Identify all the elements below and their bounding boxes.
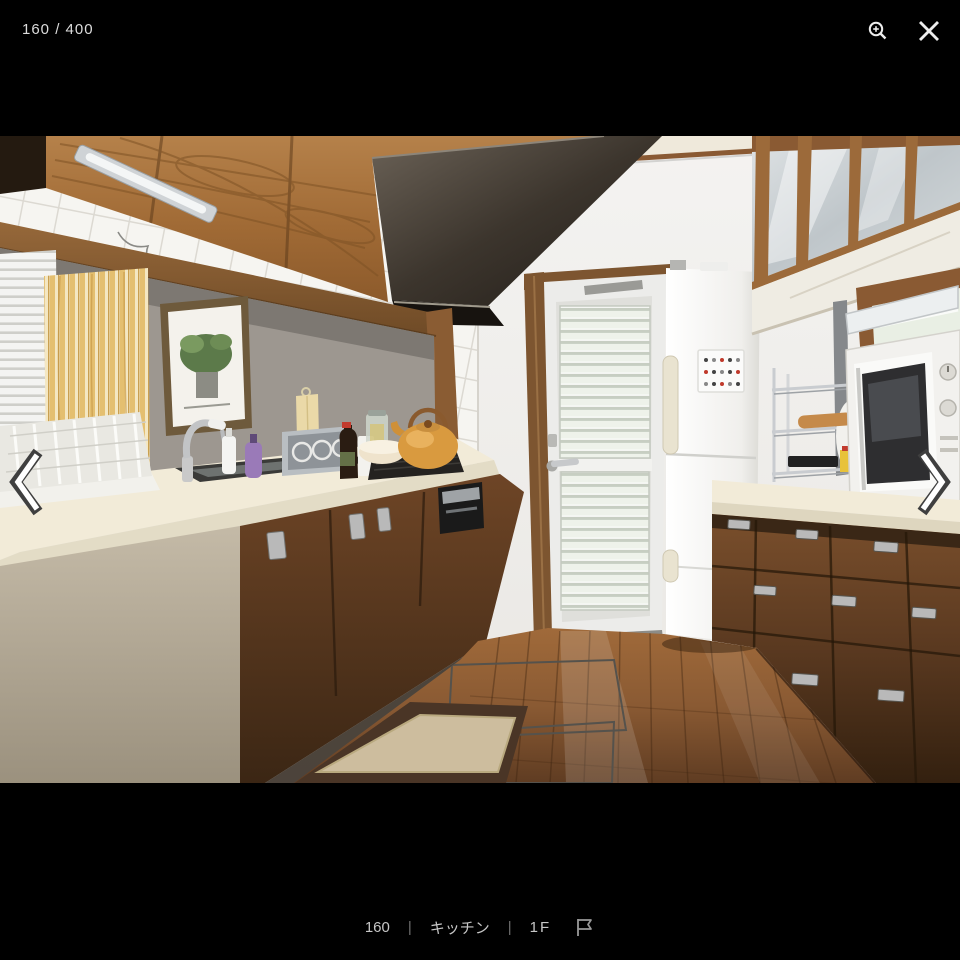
caption-floor-label: 1F bbox=[530, 919, 552, 936]
magnet-board bbox=[698, 350, 744, 392]
door-louver-upper bbox=[560, 306, 650, 458]
zoom-in-button[interactable] bbox=[865, 18, 891, 44]
photo-caption-bar: 160 | キッチン | 1F bbox=[0, 916, 960, 938]
photo-viewer: 160 / 400 bbox=[0, 0, 960, 960]
fridge-handle-lower bbox=[663, 550, 678, 582]
magnifier-plus-icon bbox=[865, 18, 891, 44]
door-louver-lower bbox=[561, 472, 649, 610]
photo-counter: 160 / 400 bbox=[22, 21, 94, 38]
back-door bbox=[524, 264, 670, 645]
flag-icon[interactable] bbox=[573, 916, 595, 938]
caption-room-label: キッチン bbox=[430, 917, 490, 938]
prev-button[interactable] bbox=[8, 448, 48, 516]
chevron-left-icon bbox=[8, 448, 48, 516]
caption-separator: | bbox=[408, 919, 412, 936]
fridge-handle-upper bbox=[663, 356, 678, 454]
caption-photo-number: 160 bbox=[365, 919, 390, 936]
framed-picture bbox=[160, 296, 252, 436]
chevron-right-icon bbox=[912, 448, 952, 516]
next-button[interactable] bbox=[912, 448, 952, 516]
close-icon bbox=[916, 18, 942, 44]
caption-separator: | bbox=[508, 919, 512, 936]
kitchen-photo bbox=[0, 136, 960, 783]
fish-grill bbox=[438, 482, 484, 534]
close-button[interactable] bbox=[916, 18, 942, 44]
remote-box bbox=[788, 456, 838, 467]
